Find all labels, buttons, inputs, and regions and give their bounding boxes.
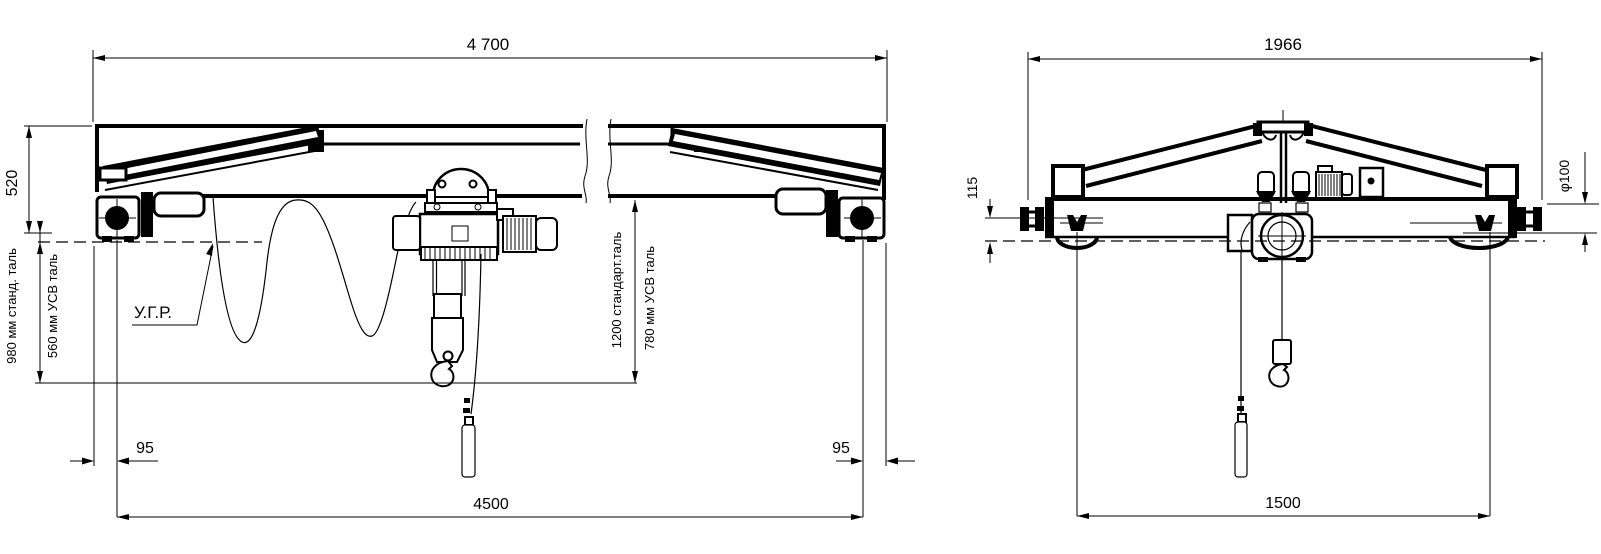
dim-wheel-offset-right: 95 xyxy=(832,240,915,517)
dim-980-label: 980 мм станд. таль xyxy=(4,248,19,364)
crane-drawing-sheet: У.Г.Р. xyxy=(0,0,1601,554)
dim-phi100-label: φ100 xyxy=(1556,160,1572,193)
electric-hoist-front xyxy=(393,169,557,477)
dim-4700-label: 4 700 xyxy=(467,35,510,54)
dim-95-left-label: 95 xyxy=(136,440,154,457)
rail-level-callout: У.Г.Р. xyxy=(132,243,213,325)
dim-span-wheels: 4500 xyxy=(117,496,863,520)
dim-hoist-lift: 1200 стандарт.таль 780 мм УСВ таль xyxy=(609,200,657,383)
dim-girder-height: 520 xyxy=(4,126,92,233)
dim-115-label: 115 xyxy=(964,177,980,200)
dim-780-label: 780 мм УСВ таль xyxy=(642,246,657,350)
hoist-trolley-end xyxy=(1256,166,1383,212)
dim-wheel-offset-left: 95 xyxy=(70,240,158,517)
dim-span-top: 4 700 xyxy=(93,35,887,122)
dim-wheel-base: 1500 xyxy=(1077,495,1490,519)
dim-560-label: 560 мм УСВ таль xyxy=(45,254,60,358)
end-truck-right xyxy=(776,189,884,242)
dim-95-right-label: 95 xyxy=(832,440,850,457)
end-view: 1966 115 φ100 1500 xyxy=(964,35,1599,519)
front-view: У.Г.Р. xyxy=(4,35,915,520)
dim-hook-lift: 980 мм станд. таль 560 мм УСВ таль xyxy=(4,221,60,383)
electric-hoist-end xyxy=(1228,212,1312,477)
festoon-cable xyxy=(213,197,416,343)
dim-1500-label: 1500 xyxy=(1265,495,1301,512)
dim-1200-label: 1200 стандарт.таль xyxy=(609,232,624,349)
technical-drawing: У.Г.Р. xyxy=(0,0,1601,554)
dim-1966-label: 1966 xyxy=(1264,35,1302,54)
end-truck-left xyxy=(97,192,204,242)
rail-level-label: У.Г.Р. xyxy=(134,303,172,322)
dim-520-label: 520 xyxy=(4,170,21,197)
dim-4500-label: 4500 xyxy=(473,496,509,513)
